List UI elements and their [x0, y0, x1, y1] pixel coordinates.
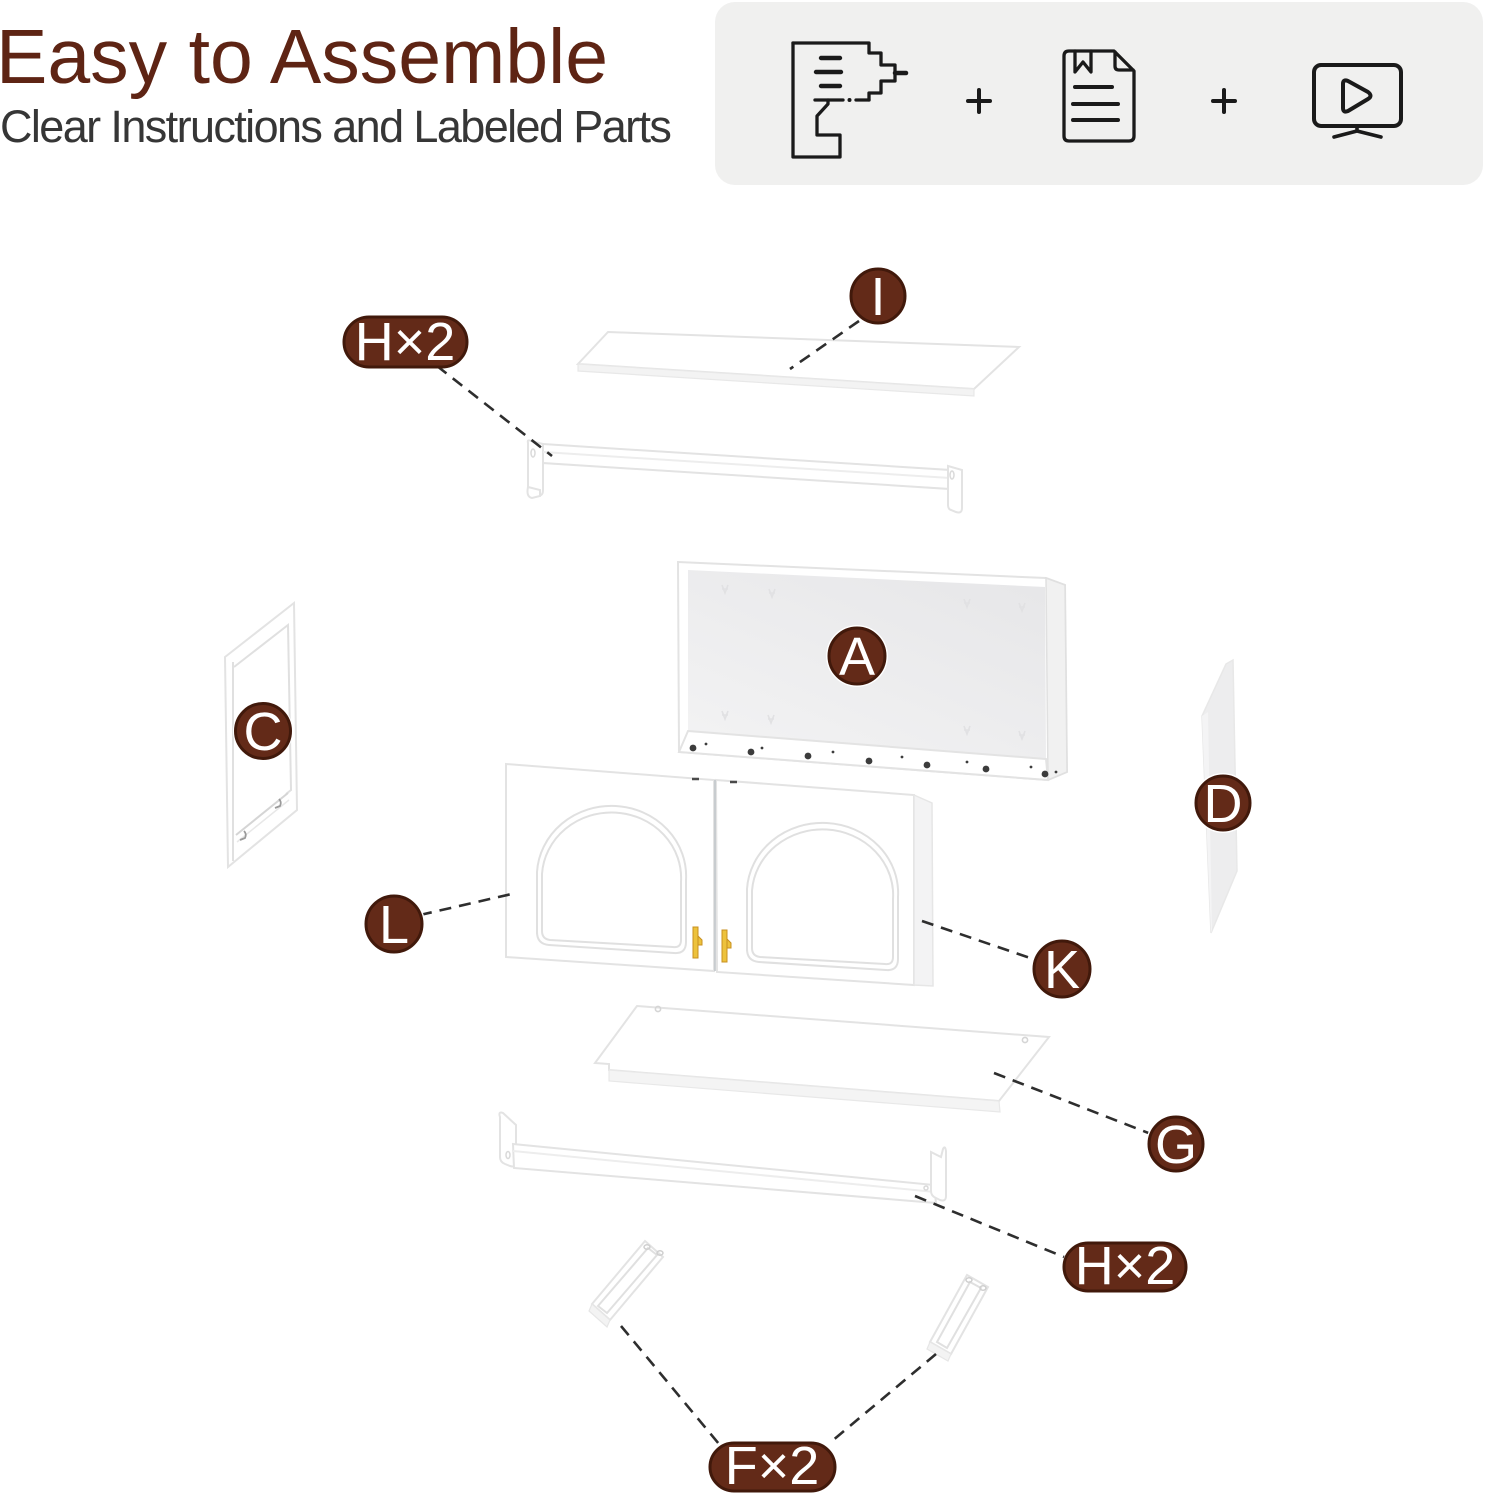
svg-text:L: L	[379, 895, 409, 955]
svg-text:D: D	[1204, 774, 1243, 834]
svg-text:A: A	[839, 627, 875, 687]
svg-text:C: C	[244, 702, 283, 762]
svg-text:K: K	[1044, 940, 1080, 1000]
svg-text:H×2: H×2	[1075, 1236, 1176, 1296]
svg-text:H×2: H×2	[355, 312, 456, 372]
svg-text:G: G	[1155, 1115, 1197, 1175]
svg-text:F×2: F×2	[725, 1436, 820, 1496]
svg-text:I: I	[870, 267, 885, 327]
